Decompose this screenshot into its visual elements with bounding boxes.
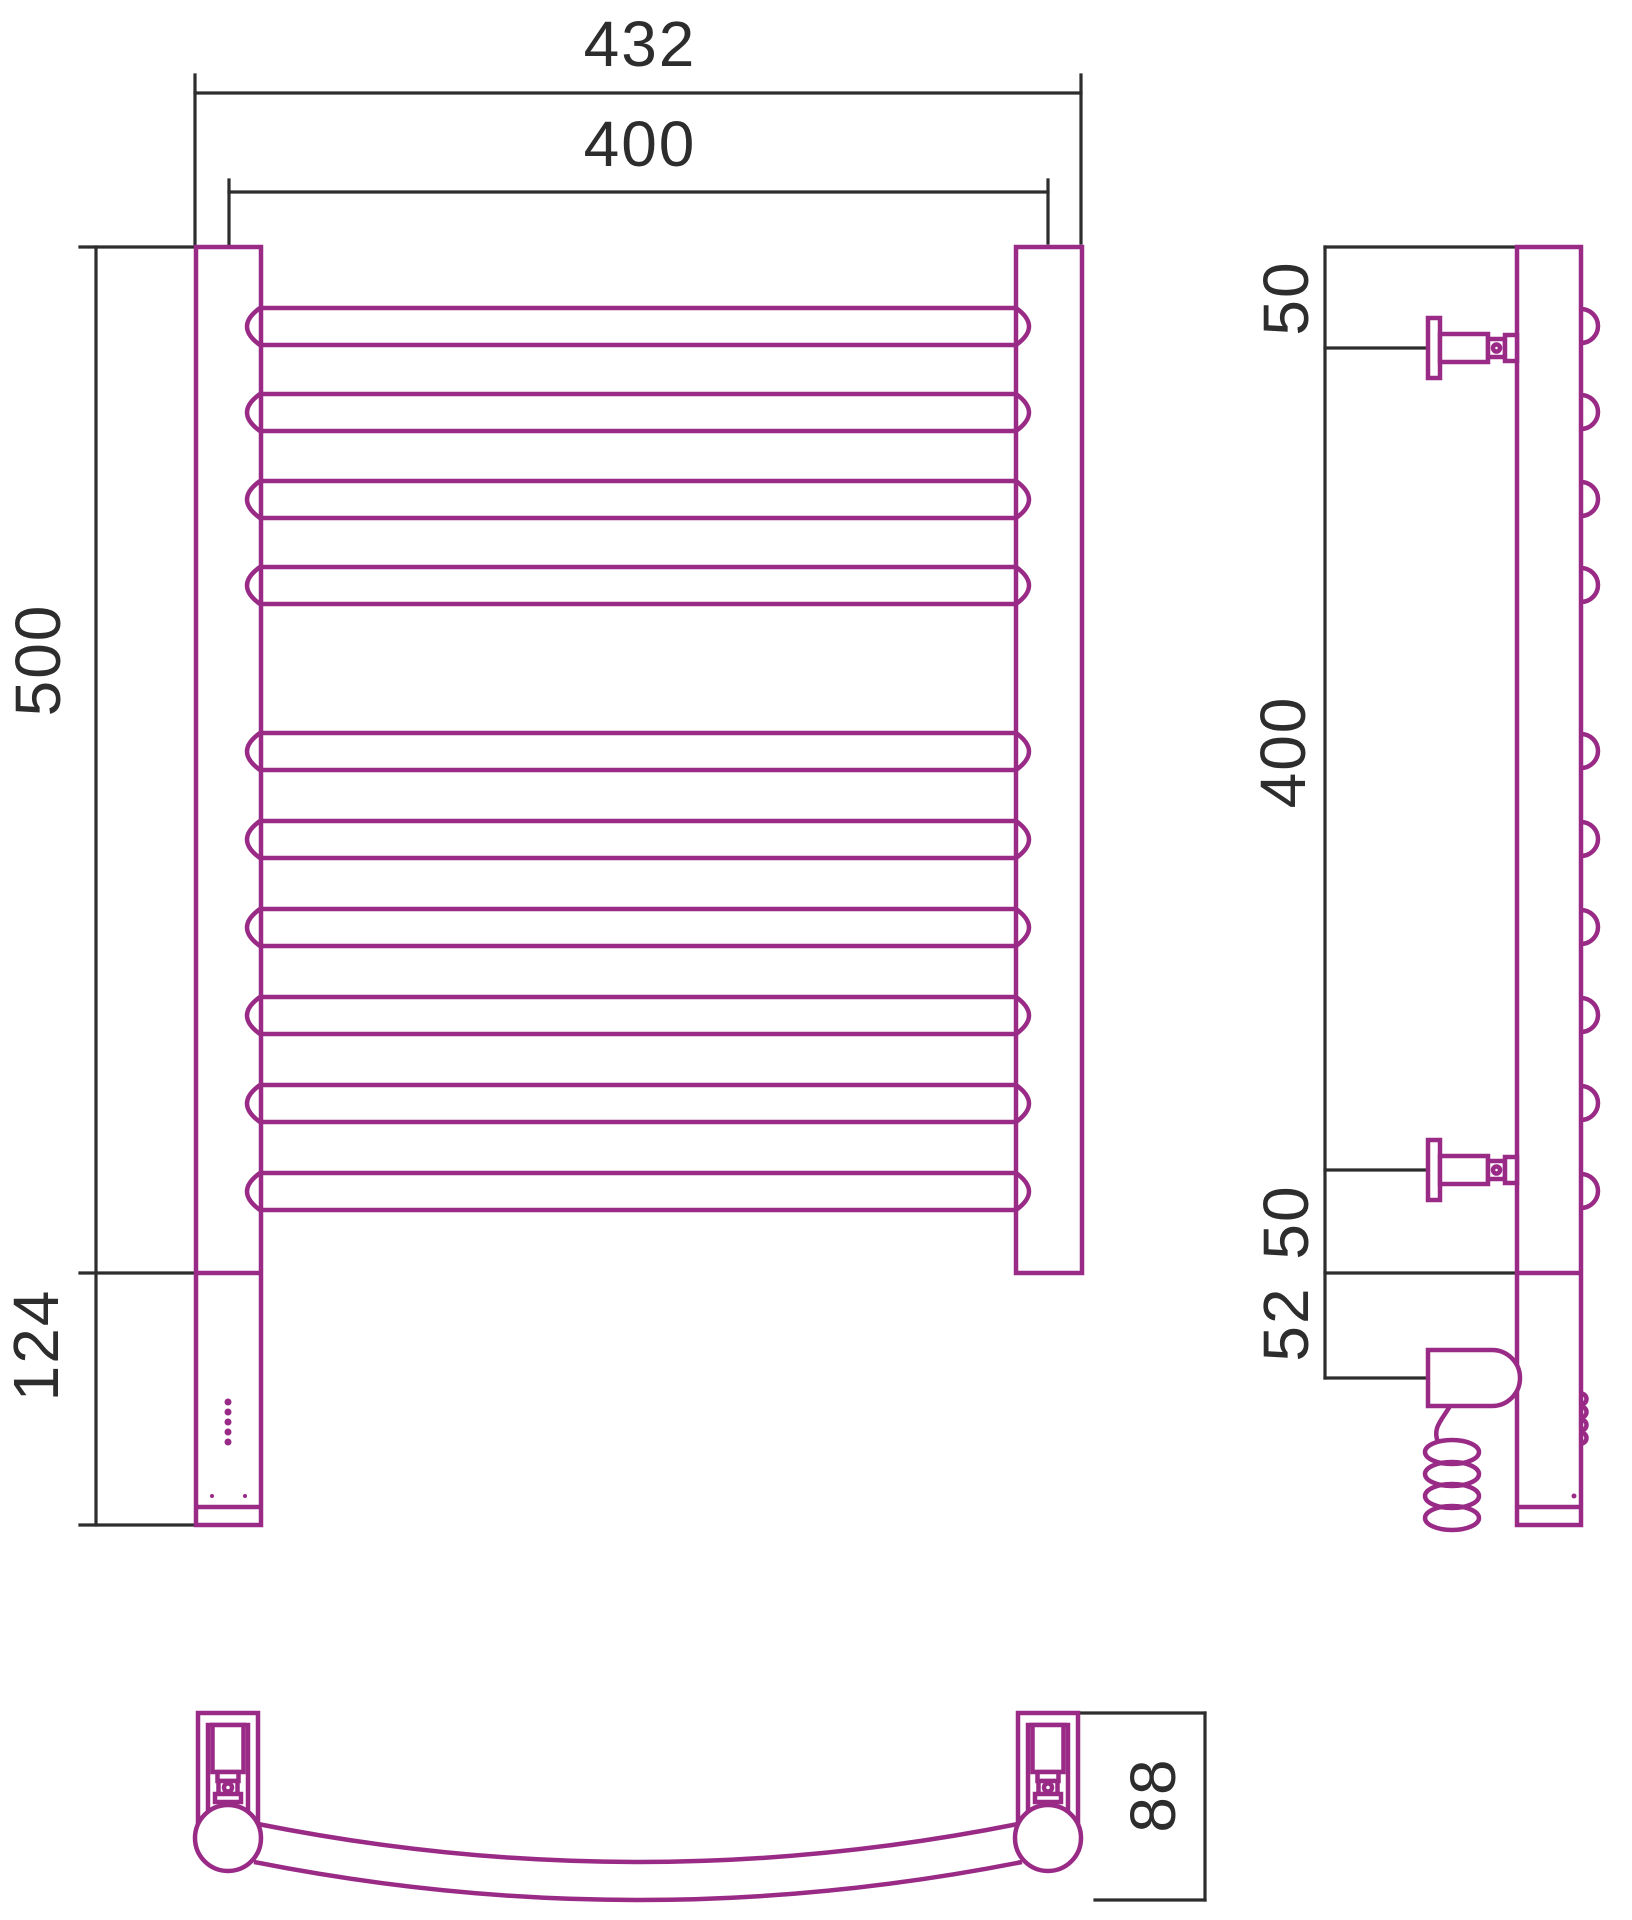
post-end-circle-left (195, 1805, 261, 1871)
dim-label-rung-span: 400 (584, 108, 697, 180)
valve-body (1440, 1156, 1488, 1184)
side-rung-end-bump-2 (1581, 395, 1598, 429)
side-rung-end-bump-7 (1581, 910, 1598, 944)
led-indicator-dot-5 (225, 1439, 232, 1446)
mount-piston (213, 1725, 244, 1772)
rung-7 (247, 909, 1029, 946)
led-indicator-dot-1 (225, 1399, 232, 1406)
towel-rail-drawing: 432 400 500 124 50 400 50 52 88 (0, 0, 1632, 1920)
curved-rail-outline-top (258, 1824, 1018, 1862)
mount-collar (1035, 1794, 1061, 1802)
dim-label-height-centers: 500 (2, 604, 74, 717)
dim-label-side-heater-offset: 52 (1250, 1286, 1322, 1361)
dim-label-side-top-offset: 50 (1250, 260, 1322, 335)
power-cable-lead (1436, 1406, 1450, 1442)
side-rung-end-bump-8 (1581, 998, 1598, 1032)
valve-body (1440, 334, 1488, 362)
dim-label-side-rung-span: 400 (1247, 696, 1319, 809)
rung-9 (247, 1085, 1029, 1122)
valve-cap (1505, 335, 1517, 361)
side-rung-end-bump-10 (1581, 1174, 1598, 1208)
valve-nut (1488, 339, 1505, 357)
dim-label-depth: 88 (1117, 1757, 1189, 1832)
side-post (1517, 247, 1581, 1525)
led-indicator-dot-3 (225, 1419, 232, 1426)
front-left-post (196, 247, 261, 1525)
valve-cap (1505, 1157, 1517, 1183)
rung-3 (247, 481, 1029, 518)
side-rung-end-bump-5 (1581, 734, 1598, 768)
side-rung-end-bump-9 (1581, 1086, 1598, 1120)
curved-rail-outline-bottom (254, 1862, 1022, 1900)
side-rung-end-bump-1 (1581, 309, 1598, 343)
rung-1 (247, 308, 1029, 345)
rung-4 (247, 567, 1029, 604)
control-box-screw-dot-1 (210, 1494, 214, 1498)
technical-drawing-page: 432 400 500 124 50 400 50 52 88 (0, 0, 1632, 1920)
valve-nut (1488, 1161, 1505, 1179)
led-indicator-dot-4 (225, 1429, 232, 1436)
dim-label-overall-width: 432 (584, 8, 697, 80)
side-rung-end-bump-3 (1581, 482, 1598, 516)
side-view (1425, 247, 1598, 1530)
dimension-lines (80, 75, 1518, 1900)
side-wall-valve-top (1428, 318, 1517, 378)
rung-6 (247, 821, 1029, 858)
post-end-circle-right (1015, 1805, 1081, 1871)
control-box-screw-dot-2 (243, 1494, 247, 1498)
dim-label-side-bottom-offset: 50 (1250, 1184, 1322, 1259)
led-indicator-dot-2 (225, 1409, 232, 1416)
mount-collar (215, 1794, 241, 1802)
side-rung-end-bump-6 (1581, 822, 1598, 856)
mount-piston (1033, 1725, 1064, 1772)
rung-10 (247, 1173, 1029, 1210)
bottom-view (195, 1713, 1081, 1900)
heating-element-box (1428, 1350, 1520, 1406)
front-view (196, 247, 1082, 1525)
rung-2 (247, 394, 1029, 431)
side-screw-dot (1572, 1494, 1577, 1499)
rung-5 (247, 733, 1029, 770)
side-wall-valve-bottom (1428, 1140, 1517, 1200)
rung-8 (247, 997, 1029, 1034)
dim-label-control-box-height: 124 (0, 1289, 72, 1402)
side-rung-end-bump-4 (1581, 568, 1598, 602)
